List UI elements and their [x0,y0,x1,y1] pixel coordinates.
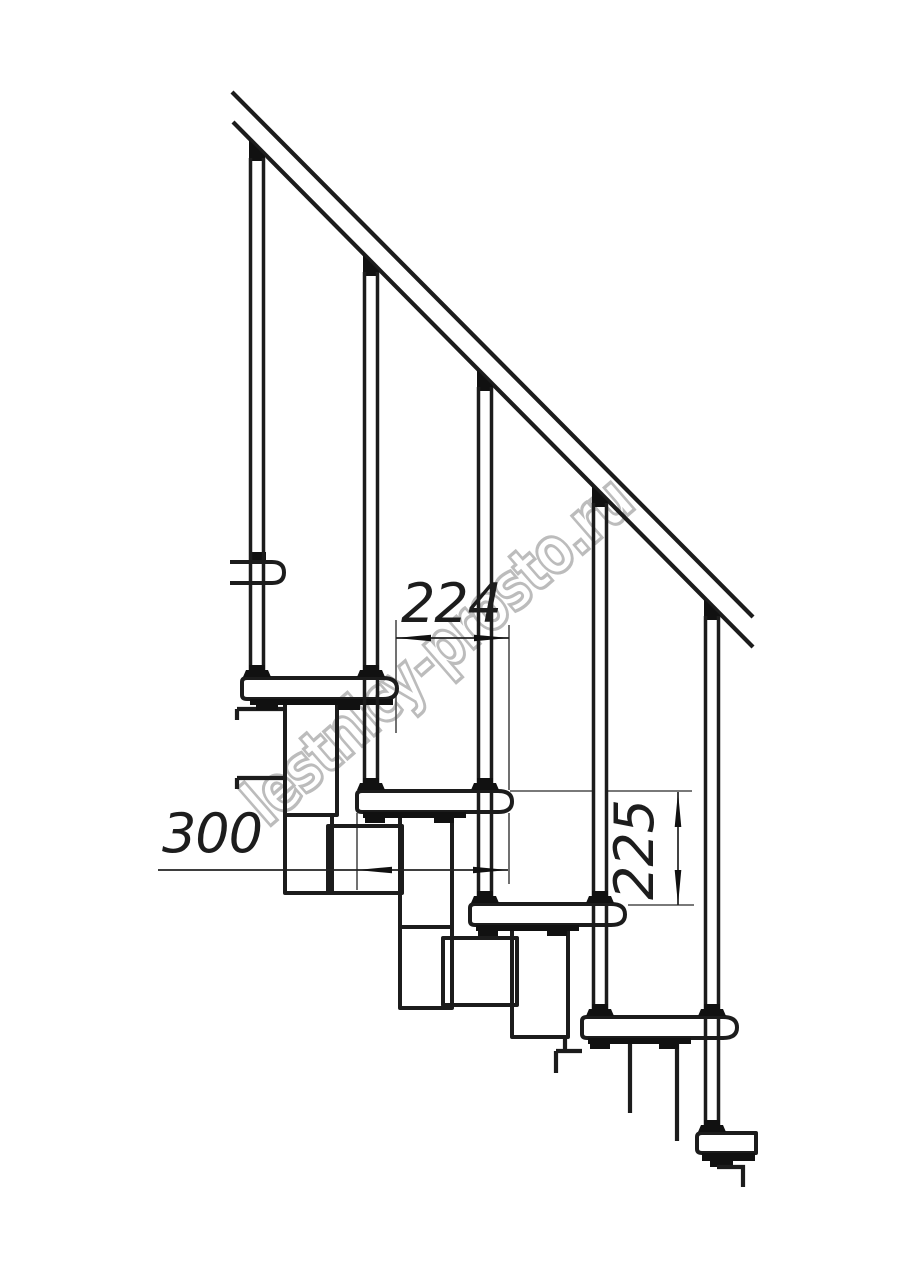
dimension-rise-label: 225 [603,800,666,900]
dimension-depth-label: 300 [162,802,262,865]
staircase-diagram-canvas: lestnicy-prosto.ru [0,0,914,1280]
dimension-run: 224 [396,572,509,641]
dimension-run-label: 224 [401,572,501,635]
drawing-page: lestnicy-prosto.ru [0,0,914,1280]
